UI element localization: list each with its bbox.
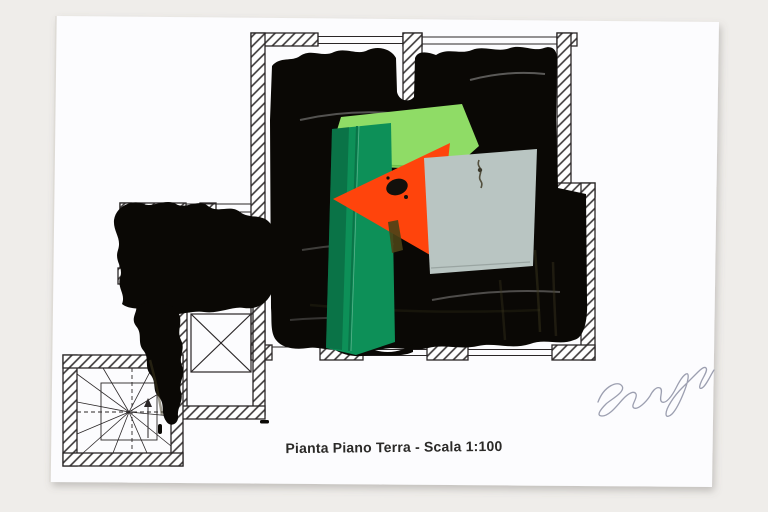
paint-fleck bbox=[158, 424, 162, 434]
plan-caption: Pianta Piano Terra - Scala 1:100 bbox=[285, 438, 502, 456]
photographed-artwork: Pianta Piano Terra - Scala 1:100 bbox=[0, 0, 768, 512]
paint-left-blob bbox=[114, 202, 272, 314]
paint-fleck bbox=[260, 420, 269, 424]
dark-green-paper bbox=[326, 123, 395, 355]
artwork-canvas: Pianta Piano Terra - Scala 1:100 bbox=[0, 0, 768, 512]
gray-blue-paper bbox=[424, 149, 537, 274]
